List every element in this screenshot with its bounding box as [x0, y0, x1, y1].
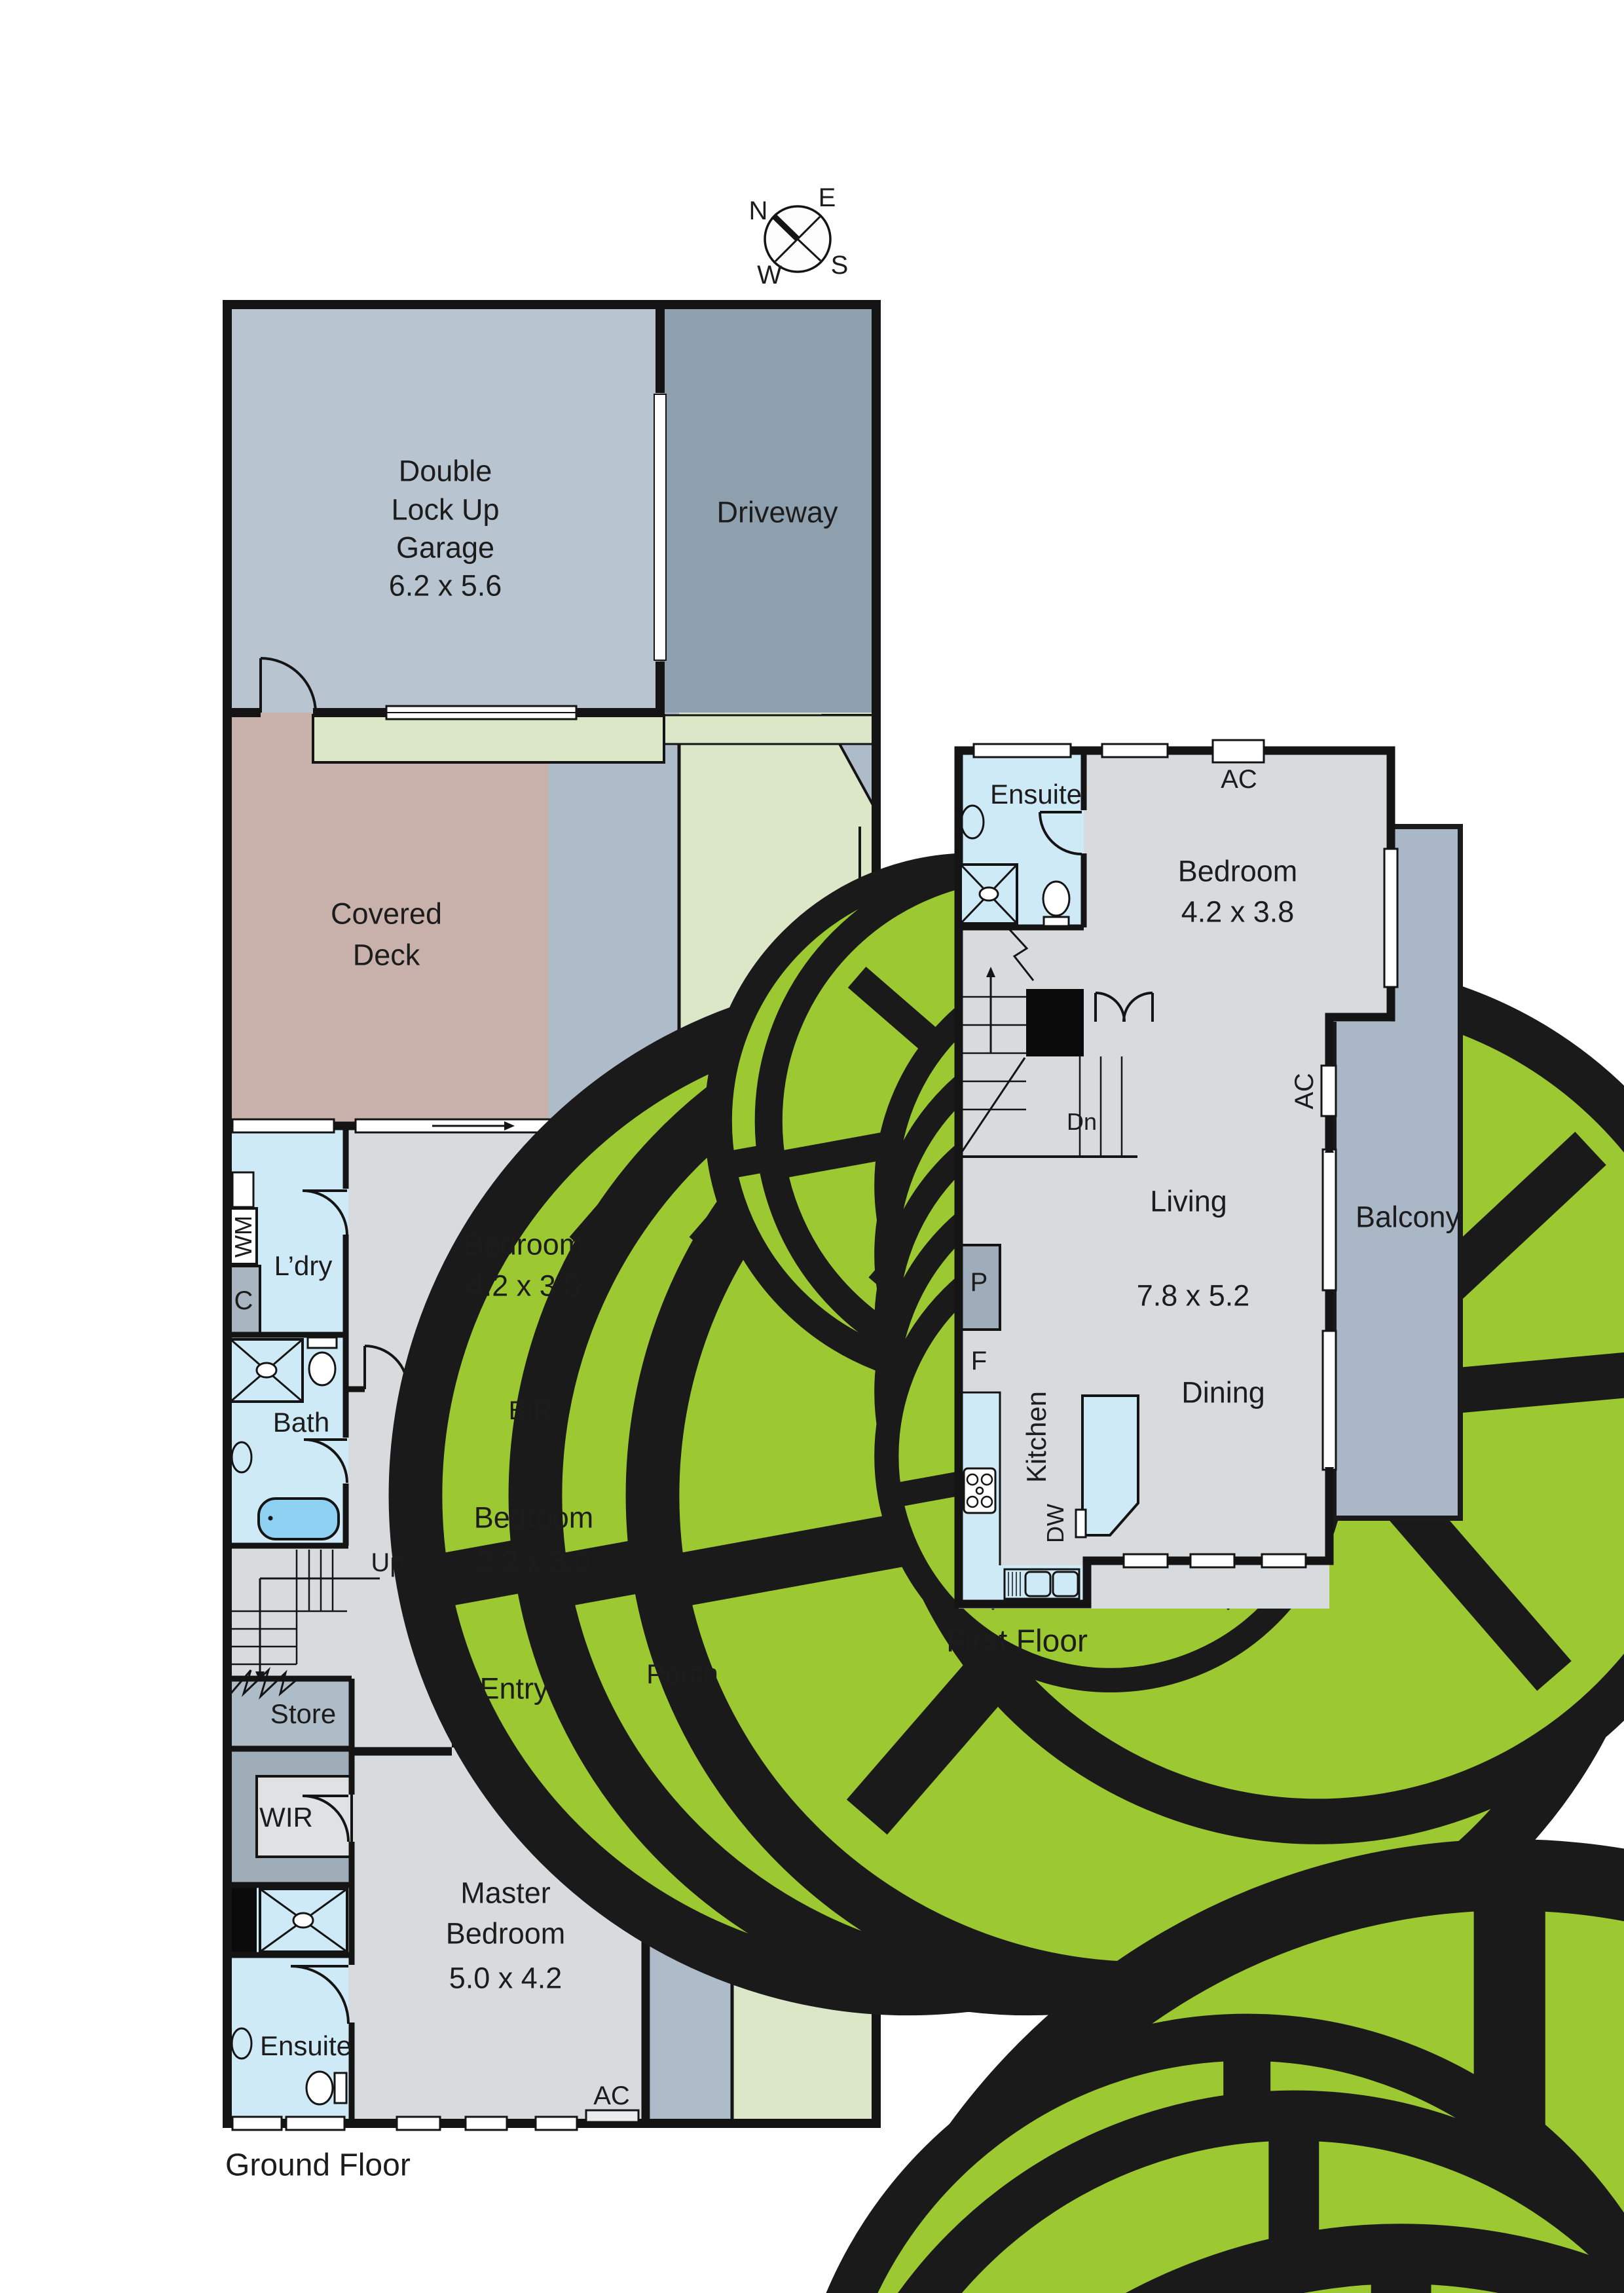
washing-machine-label: WM: [232, 1216, 255, 1258]
bir-label: BIR: [509, 1398, 553, 1424]
compass-s: S: [831, 252, 849, 278]
dishwasher-box: [1076, 1510, 1086, 1537]
store-label: Store: [270, 1700, 336, 1728]
master-label-2: Bedroom: [446, 1919, 566, 1948]
entry-label: Entry: [479, 1674, 548, 1704]
floorplan-canvas: [0, 0, 1624, 2293]
master-dimensions: 5.0 x 4.2: [449, 1964, 563, 1993]
bath-label: Bath: [273, 1409, 329, 1436]
garage-window: [386, 706, 576, 719]
driveway-label: Driveway: [716, 498, 838, 527]
living-label: Living: [1150, 1187, 1227, 1216]
compass-e: E: [819, 185, 836, 211]
stair-void: [1026, 989, 1084, 1056]
porch-label: Porch: [646, 1660, 718, 1688]
master-label-1: Master: [460, 1878, 551, 1908]
bathtub-icon: [259, 1499, 339, 1539]
wir-label: WIR: [259, 1804, 313, 1831]
toilet-icon: [1043, 882, 1069, 926]
toilet-icon: [306, 2072, 346, 2104]
balcony-label: Balcony: [1356, 1202, 1460, 1232]
garage-door-opening: [654, 394, 666, 660]
shower-icon: [231, 1339, 303, 1402]
pantry-label: P: [970, 1269, 988, 1296]
stairs-down-label: Dn: [1067, 1110, 1097, 1134]
ac-ground-label: AC: [593, 2083, 630, 2109]
deck-label-2: Deck: [353, 941, 420, 970]
laundry-label: L’dry: [274, 1252, 333, 1280]
ground-floor-title: Ground Floor: [225, 2148, 411, 2184]
ensuite-ground-label: Ensuite: [260, 2032, 352, 2060]
stairs-up-label: Up: [371, 1550, 404, 1576]
shower-icon: [961, 865, 1017, 923]
floorplan-page: N E W S Double Lock Up Garage 6.2 x 5.6 …: [0, 0, 1624, 2293]
bedroom2-dimensions: 3.2 x 3.0: [477, 1547, 591, 1576]
toilet-icon: [308, 1337, 337, 1385]
bedroom-ff-label: Bedroom: [1178, 857, 1298, 886]
laundry-tub: [232, 1172, 253, 1207]
kitchen-island: [1082, 1396, 1138, 1535]
compass-w: W: [757, 262, 782, 288]
ac-living-label: AC: [1291, 1073, 1318, 1109]
garden-strip-thin: [664, 715, 876, 744]
compass-n: N: [749, 198, 768, 224]
garden-strip: [313, 715, 664, 762]
stove-icon: [964, 1468, 995, 1513]
ensuite-ff-label: Ensuite: [990, 781, 1082, 808]
dishwasher-label: DW: [1044, 1504, 1067, 1543]
ac-bedroom-label: AC: [1221, 766, 1257, 792]
dining-label: Dining: [1181, 1378, 1265, 1407]
garage-label-1: Double: [399, 457, 492, 486]
living-dimensions: 7.8 x 5.2: [1137, 1281, 1250, 1311]
garage-dimensions: 6.2 x 5.6: [389, 571, 502, 601]
garage-label-3: Garage: [396, 533, 494, 563]
deck-label-1: Covered: [331, 899, 442, 929]
kitchen-label: Kitchen: [1023, 1391, 1050, 1483]
bedroom1-label: Bedroom: [464, 1230, 584, 1259]
first-floor-title: First Floor: [946, 1624, 1088, 1660]
bedroom1-dimensions: 4.2 x 3.8: [468, 1271, 581, 1301]
fridge-label: F: [971, 1348, 987, 1374]
garage-label-2: Lock Up: [391, 495, 499, 525]
ac-unit: [586, 2110, 638, 2122]
cupboard-label: C: [234, 1288, 253, 1314]
bedroom-ff-dimensions: 4.2 x 3.8: [1181, 897, 1295, 927]
shower-icon: [260, 1889, 347, 1952]
bedroom2-label: Bedroom: [474, 1503, 594, 1533]
ac-unit-living: [1321, 1066, 1336, 1116]
ac-unit-bedroom: [1213, 740, 1264, 762]
